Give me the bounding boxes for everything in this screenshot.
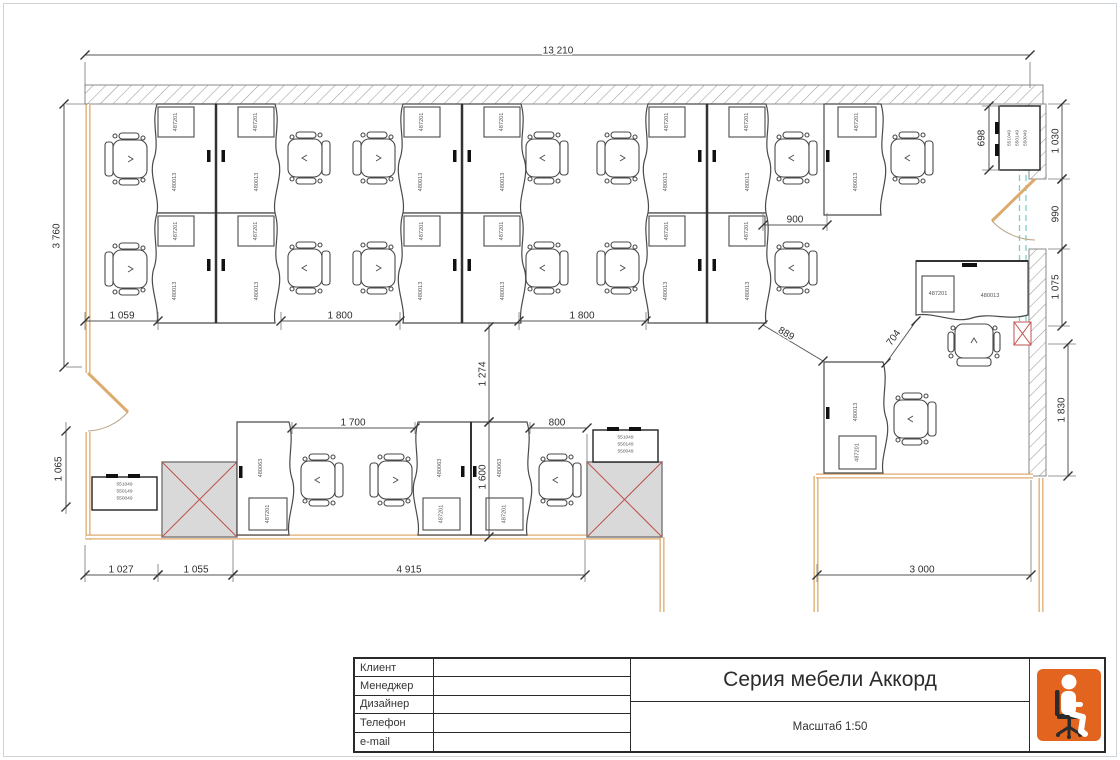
titleblock-value-manager — [434, 677, 631, 695]
dimension-label: 1 027 — [108, 565, 133, 576]
column-marker-small — [1014, 322, 1031, 345]
drawing-text: 487201 — [502, 505, 508, 524]
drawing-text: 480013 — [500, 282, 506, 301]
drawing-text: 487201 — [253, 222, 259, 241]
drawing-text: 480013 — [418, 173, 424, 192]
cable-grommet — [826, 150, 830, 162]
titleblock-label-client: Клиент — [355, 659, 434, 677]
dimension-label: 1 274 — [478, 361, 489, 386]
drawing-text: 487201 — [265, 505, 271, 524]
drawing-text: 487201 — [664, 222, 670, 241]
drawing-text: 487201 — [855, 443, 861, 462]
cable-grommet — [713, 259, 717, 271]
drawing-text: 480013 — [663, 173, 669, 192]
drawing-text: 480013 — [254, 173, 260, 192]
office-chair — [288, 242, 330, 294]
dimension-label: 4 915 — [396, 565, 421, 576]
drawing-page: 4872014872014800134800134872014872014800… — [0, 0, 1120, 760]
dimension-label: 13 210 — [543, 46, 574, 57]
drawing-text: 480013 — [172, 173, 178, 192]
dimension-label: 1 800 — [327, 311, 352, 322]
dimension-label: 3 000 — [909, 565, 934, 576]
vendor-logo — [1030, 659, 1108, 751]
column-marker — [587, 462, 662, 537]
office-chair — [301, 454, 343, 506]
drawing-text: 480013 — [500, 173, 506, 192]
dimension-label: 1 800 — [569, 311, 594, 322]
drawing-text: 550149 — [1015, 130, 1021, 146]
office-chair — [105, 133, 147, 185]
drawing-text: 480013 — [745, 282, 751, 301]
title-block-right: Серия мебели Аккорд Масштаб 1:50 — [631, 659, 1030, 751]
drawing-text: 487201 — [664, 113, 670, 132]
titleblock-value-phone — [434, 714, 631, 732]
cable-grommet — [222, 150, 226, 162]
drawing-text: 487201 — [439, 505, 445, 524]
cable-grommet — [713, 150, 717, 162]
drawing-text: 487201 — [419, 222, 425, 241]
drawing-text: 480013 — [663, 282, 669, 301]
cable-grommet — [222, 259, 226, 271]
drawing-text: 480013 — [172, 282, 178, 301]
cable-grommet — [207, 259, 211, 271]
office-chair — [539, 454, 581, 506]
drawing-scale: Масштаб 1:50 — [631, 702, 1029, 751]
dimension-label: 1 030 — [1051, 128, 1062, 153]
office-chair — [948, 324, 1000, 366]
office-chair — [597, 242, 639, 294]
cable-grommet — [453, 259, 457, 271]
office-chair — [288, 132, 330, 184]
drawing-text: 487201 — [744, 113, 750, 132]
dimension-label: 1 600 — [478, 464, 489, 489]
dimension-label: 1 830 — [1057, 397, 1068, 422]
drawing-title: Серия мебели Аккорд — [631, 659, 1029, 702]
office-chair — [370, 454, 412, 506]
drawing-text: 480013 — [745, 173, 751, 192]
office-chair — [891, 132, 933, 184]
title-block: Клиент Менеджер Дизайнер Телефон e-mail … — [353, 657, 1106, 753]
titleblock-label-phone: Телефон — [355, 714, 434, 732]
cable-grommet — [207, 150, 211, 162]
floor-plan-canvas: 4872014872014800134800134872014872014800… — [0, 0, 1120, 760]
drawing-text: 551049 — [617, 435, 633, 441]
dimension-label: 1 055 — [183, 565, 208, 576]
drawing-text: 487201 — [173, 222, 179, 241]
drawing-text: 550149 — [617, 442, 633, 448]
drawing-text: 550049 — [116, 496, 132, 502]
office-chair — [105, 243, 147, 295]
cable-grommet — [962, 263, 977, 267]
person-on-office-chair-icon — [1036, 668, 1102, 742]
drawing-text: 487201 — [854, 113, 860, 132]
drawing-text: 550149 — [116, 489, 132, 495]
titleblock-value-client — [434, 659, 631, 677]
drawing-text: 551049 — [1007, 130, 1013, 146]
drawing-text: 480013 — [853, 403, 859, 422]
office-chair — [526, 242, 568, 294]
dimension-label: 1 700 — [340, 418, 365, 429]
title-block-labels: Клиент Менеджер Дизайнер Телефон e-mail — [355, 659, 434, 751]
office-chair — [775, 132, 817, 184]
office-chair — [894, 393, 936, 445]
drawing-text: 480063 — [437, 459, 443, 478]
dimension-label: 889 — [776, 325, 796, 343]
drawing-text: 487201 — [929, 291, 948, 297]
cable-grommet — [461, 466, 465, 477]
cable-grommet — [473, 466, 477, 477]
drawing-text: 487201 — [253, 113, 259, 132]
dimension-label: 800 — [549, 418, 566, 429]
drawing-text: 487201 — [419, 113, 425, 132]
cable-grommet — [453, 150, 457, 162]
cable-grommet — [826, 407, 830, 419]
drawing-text: 480063 — [258, 459, 264, 478]
drawing-text: 487201 — [499, 113, 505, 132]
dimension-label: 1 059 — [109, 311, 134, 322]
drawing-text: 480063 — [497, 459, 503, 478]
cable-grommet — [468, 259, 472, 271]
titleblock-label-manager: Менеджер — [355, 677, 434, 695]
column-marker — [162, 462, 237, 537]
titleblock-label-designer: Дизайнер — [355, 696, 434, 714]
drawing-text: 550049 — [1023, 130, 1029, 146]
cable-grommet — [698, 259, 702, 271]
drawing-text: 480013 — [418, 282, 424, 301]
cable-grommet — [239, 466, 243, 478]
office-chair — [775, 242, 817, 294]
office-chair — [353, 242, 395, 294]
cable-grommet — [698, 150, 702, 162]
dimension-label: 3 760 — [52, 223, 63, 248]
dimension-label: 698 — [977, 129, 988, 146]
dimension-label: 704 — [885, 328, 904, 348]
titleblock-label-email: e-mail — [355, 733, 434, 751]
drawing-text: 487201 — [499, 222, 505, 241]
drawing-text: 480013 — [853, 173, 859, 192]
dimension-label: 990 — [1051, 205, 1062, 222]
drawing-text: 487201 — [173, 113, 179, 132]
office-chair — [597, 132, 639, 184]
drawing-text: 551049 — [116, 482, 132, 488]
office-chair — [526, 132, 568, 184]
title-block-values — [434, 659, 631, 751]
dimension-label: 1 065 — [54, 456, 65, 481]
cable-grommet — [468, 150, 472, 162]
titleblock-value-designer — [434, 696, 631, 714]
drawing-text: 480013 — [254, 282, 260, 301]
drawing-text: 487201 — [744, 222, 750, 241]
drawing-text: 480013 — [981, 293, 1000, 299]
drawing-text: 550049 — [617, 449, 633, 455]
titleblock-value-email — [434, 733, 631, 751]
dimension-label: 900 — [787, 215, 804, 226]
office-chair — [353, 132, 395, 184]
dimension-label: 1 075 — [1051, 274, 1062, 299]
